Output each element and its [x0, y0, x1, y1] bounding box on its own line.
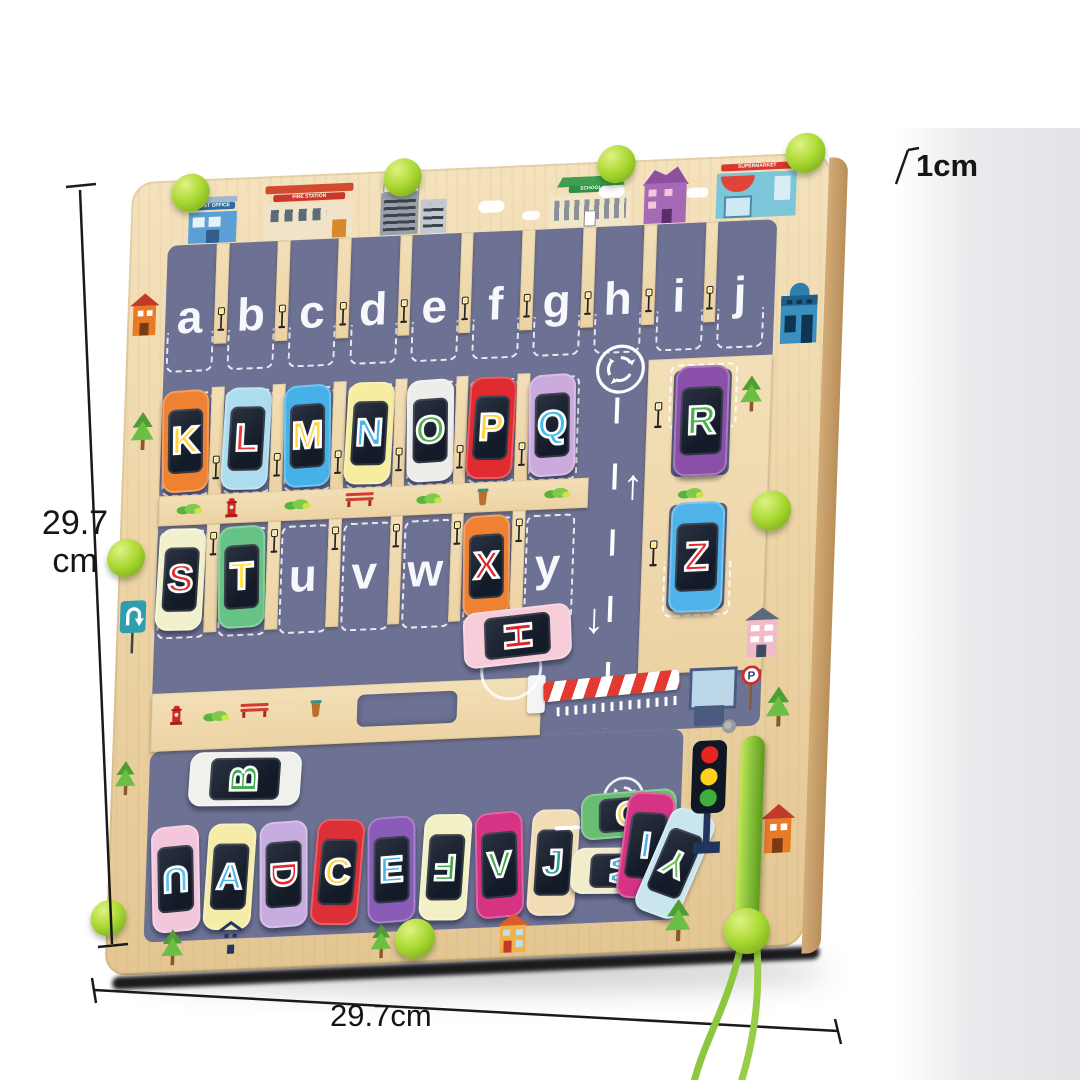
car-letter-T: T [230, 557, 254, 597]
car-letter-L: L [234, 419, 259, 458]
slot-dash-d [349, 323, 397, 365]
car-letter-X: X [474, 546, 500, 586]
car-T[interactable]: T [218, 524, 266, 629]
car-letter-N: N [354, 414, 384, 453]
grass-icon [284, 497, 310, 510]
tree-icon [113, 761, 138, 796]
roundabout-icon [594, 342, 648, 396]
parking-slot-v: v [338, 523, 390, 621]
slot-dash-c [288, 326, 336, 368]
street-lamp-icon [460, 296, 471, 323]
slot-dash-e [410, 320, 458, 362]
car-K[interactable]: K [162, 389, 210, 494]
slot-dash-g [532, 315, 580, 357]
street-lamp-icon [393, 447, 404, 474]
tree-icon [764, 686, 793, 727]
car-letter-P: P [477, 409, 505, 448]
bench-icon [344, 490, 375, 507]
traffic-light-icon [685, 737, 731, 865]
orange-house-icon [127, 291, 163, 337]
car-letter-U: U [162, 860, 189, 898]
car-letter-K: K [172, 421, 200, 461]
grass-icon [678, 486, 704, 499]
divider-cutout-slot [357, 691, 458, 727]
fire-station-building: FIRE STATION [264, 183, 354, 241]
car-N[interactable]: N [342, 382, 395, 485]
car-P[interactable]: P [465, 376, 518, 479]
car-B[interactable]: B [187, 751, 302, 806]
car-C[interactable]: C [309, 819, 366, 926]
cloud-icon [478, 200, 504, 213]
car-letter-C: C [323, 854, 352, 890]
slot-letter-u: u [288, 548, 318, 603]
car-X[interactable]: X [462, 514, 510, 619]
trash-icon [309, 698, 323, 717]
supermarket-building: SUPERMARKET [715, 161, 797, 219]
tree-icon [368, 924, 393, 959]
street-lamp-icon [513, 518, 524, 545]
car-letter-F: F [433, 849, 457, 885]
parking-sign-icon: P [740, 665, 762, 712]
u-turn-sign-icon [118, 600, 148, 655]
car-R[interactable]: R [673, 364, 731, 477]
street-lamp-icon [215, 306, 226, 333]
wall-background [898, 128, 1080, 1080]
grass-icon [544, 485, 570, 498]
board-face: POST OFFICE FIRE STATION HOSPITAL SCHOOL… [104, 152, 831, 976]
street-lamp-icon [652, 401, 664, 430]
street-lamp-icon [399, 298, 410, 325]
car-Q[interactable]: Q [528, 372, 576, 477]
car-letter-D: D [266, 860, 302, 889]
car-F[interactable]: F [418, 814, 473, 921]
car-letter-V: V [487, 846, 512, 884]
parking-slot-w: w [399, 521, 451, 619]
slot-dash-i [655, 310, 703, 352]
side-dimension-unit: cm [30, 542, 120, 581]
car-letter-H: H [498, 620, 537, 652]
slot-dash-a [165, 331, 213, 373]
tree-icon [739, 375, 764, 412]
street-lamp-icon [704, 285, 715, 312]
car-U[interactable]: U [151, 824, 201, 934]
grass-icon [176, 502, 202, 515]
car-V[interactable]: V [474, 810, 524, 920]
grass-icon [416, 491, 442, 504]
tree-icon [159, 929, 186, 966]
bottom-dimension-label: 29.7cm [330, 998, 432, 1034]
car-A[interactable]: A [202, 823, 257, 930]
car-M[interactable]: M [284, 383, 332, 488]
street-lamp-icon [332, 449, 343, 476]
slot-letter-y: y [534, 537, 561, 592]
car-letter-E: E [379, 851, 403, 889]
parking-slot-u: u [277, 526, 329, 624]
street-lamp-icon [516, 441, 527, 468]
slot-dash-f [471, 318, 519, 360]
street-lamp-icon [330, 526, 341, 553]
alphabet-maze-board: POST OFFICE FIRE STATION HOSPITAL SCHOOL… [104, 152, 831, 976]
car-O[interactable]: O [406, 378, 454, 483]
street-lamp-icon [643, 288, 654, 315]
tree-icon [129, 411, 156, 450]
parking-slot-y: y [521, 515, 573, 613]
cloud-icon [686, 187, 708, 198]
side-dimension-label: 29.7 [30, 504, 120, 543]
slot-dash-b [227, 328, 275, 370]
street-lamp-icon [647, 540, 659, 569]
car-Z[interactable]: Z [668, 501, 726, 614]
product-photo-scene: POST OFFICE FIRE STATION HOSPITAL SCHOOL… [0, 0, 1080, 1080]
car-letter-S: S [167, 560, 195, 599]
toll-booth [686, 665, 734, 727]
grass-icon [203, 709, 229, 722]
car-L[interactable]: L [220, 387, 273, 490]
street-lamp-icon [391, 523, 402, 550]
svg-text:P: P [747, 670, 755, 682]
car-D[interactable]: D [260, 819, 308, 929]
slot-letter-v: v [350, 545, 377, 600]
corner-shop-icon [777, 280, 821, 344]
pink-house-icon [740, 606, 784, 658]
car-letter-Q: Q [537, 405, 567, 445]
tree-icon [662, 898, 693, 941]
lane-arrow-down: ↓ [583, 593, 625, 639]
car-letter-J: J [542, 844, 564, 880]
car-letter-O: O [415, 410, 445, 450]
navy-house-icon [215, 920, 246, 957]
slot-letter-w: w [406, 542, 444, 598]
street-lamp-icon [271, 452, 282, 479]
street-lamp-icon [582, 290, 593, 317]
street-lamp-icon [207, 531, 218, 558]
street-lamp-icon [452, 520, 463, 547]
car-letter-Z: Z [684, 536, 710, 577]
car-E[interactable]: E [367, 815, 415, 925]
car-S[interactable]: S [154, 528, 207, 631]
beige-house-icon [494, 912, 531, 954]
hydrant-icon [169, 703, 184, 728]
cloud-icon [522, 211, 540, 221]
thickness-dimension-label: 1cm [916, 148, 978, 184]
street-lamp-icon [276, 304, 287, 331]
street-lamp-icon [269, 528, 280, 555]
hydrant-icon [224, 495, 239, 520]
bench-icon [239, 701, 270, 718]
street-lamp-icon [337, 301, 348, 328]
car-letter-B: B [225, 765, 265, 793]
car-letter-A: A [215, 859, 243, 895]
trash-icon [476, 487, 490, 506]
car-letter-M: M [292, 416, 324, 456]
car-letter-R: R [686, 400, 716, 441]
street-lamp-icon [521, 293, 532, 320]
purple-house-building [641, 166, 689, 224]
cord-ball[interactable] [724, 908, 770, 954]
pen-hole-icon [721, 718, 737, 734]
cloud-icon [598, 185, 624, 198]
street-lamp-icon [210, 455, 221, 482]
street-lamp-icon [455, 444, 466, 471]
slot-dash-j [716, 307, 764, 349]
